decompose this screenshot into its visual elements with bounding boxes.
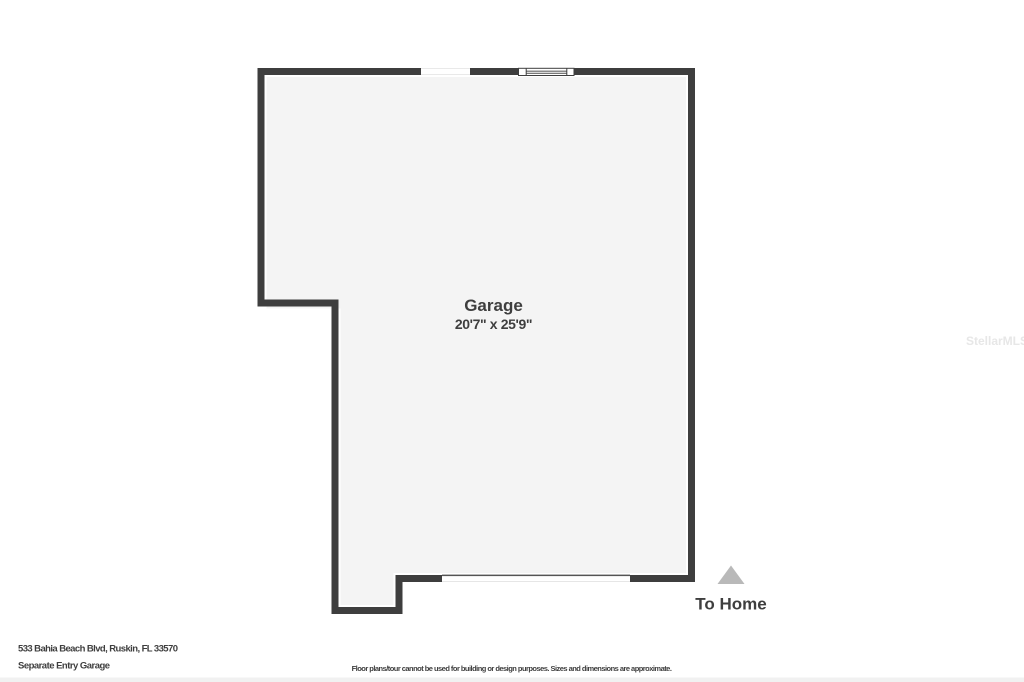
svg-text:To Home: To Home: [695, 595, 766, 614]
svg-text:Garage: Garage: [464, 296, 523, 315]
svg-text:20'7" x 25'9": 20'7" x 25'9": [455, 316, 532, 332]
svg-text:Separate Entry Garage: Separate Entry Garage: [18, 661, 110, 672]
svg-text:533 Bahia Beach Blvd, Ruskin,: 533 Bahia Beach Blvd, Ruskin, FL 33570: [18, 644, 178, 655]
svg-text:Floor plans/tour cannot be use: Floor plans/tour cannot be used for buil…: [352, 664, 672, 673]
svg-text:StellarMLS: StellarMLS: [966, 334, 1024, 348]
